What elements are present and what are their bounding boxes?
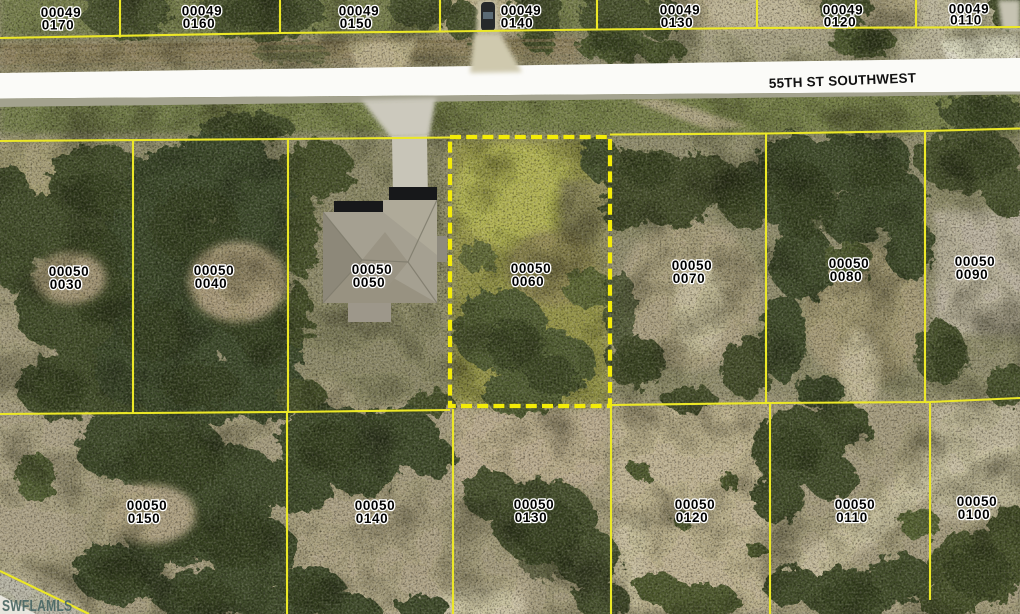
svg-text:0070: 0070: [673, 271, 705, 286]
svg-text:0080: 0080: [830, 269, 862, 284]
svg-text:0110: 0110: [950, 13, 982, 28]
svg-text:0140: 0140: [356, 511, 388, 526]
svg-text:0110: 0110: [836, 510, 868, 525]
svg-text:0120: 0120: [676, 510, 708, 525]
svg-text:0090: 0090: [956, 267, 988, 282]
svg-text:0140: 0140: [501, 16, 533, 31]
svg-text:0170: 0170: [42, 18, 74, 33]
svg-text:0060: 0060: [512, 274, 544, 289]
svg-text:0100: 0100: [958, 507, 990, 522]
svg-text:0160: 0160: [183, 16, 215, 31]
svg-text:SWFLAMLS: SWFLAMLS: [2, 597, 72, 614]
svg-text:0050: 0050: [353, 275, 385, 290]
svg-text:0030: 0030: [50, 277, 82, 292]
svg-text:0130: 0130: [661, 15, 693, 30]
svg-text:0040: 0040: [195, 276, 227, 291]
svg-text:0150: 0150: [128, 511, 160, 526]
svg-text:0150: 0150: [340, 16, 372, 31]
svg-text:0120: 0120: [824, 15, 856, 30]
svg-text:0130: 0130: [515, 510, 547, 525]
